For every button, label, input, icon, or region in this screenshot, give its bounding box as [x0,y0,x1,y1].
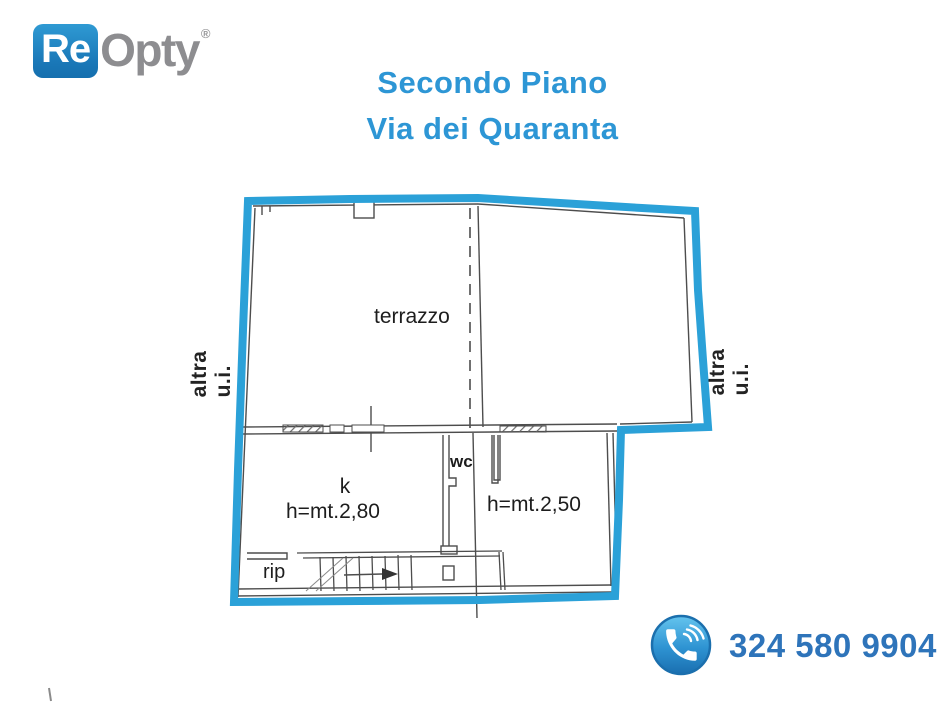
stairs [297,551,505,591]
label-kitchen-height: h=mt.2,80 [286,500,380,524]
label-wc: wc [450,452,473,472]
label-adjacent-unit-right: altra u.i. [706,349,754,396]
label-storage: rip [263,561,285,584]
unit-outline [234,198,708,602]
label-room-height: h=mt.2,50 [487,493,581,517]
phone-number: 324 580 9904 [729,627,937,665]
floorplan-drawing [0,0,950,712]
page-artifact-mark [49,688,51,701]
floorplan-page: Re Opty ® Secondo Piano Via dei Quaranta [0,0,950,712]
label-terrazzo: terrazzo [374,305,450,329]
label-adjacent-unit-left: altra u.i. [188,351,236,398]
phone-icon [650,614,714,678]
label-kitchen: k [300,475,390,499]
contact-block: 324 580 9904 [650,614,937,678]
